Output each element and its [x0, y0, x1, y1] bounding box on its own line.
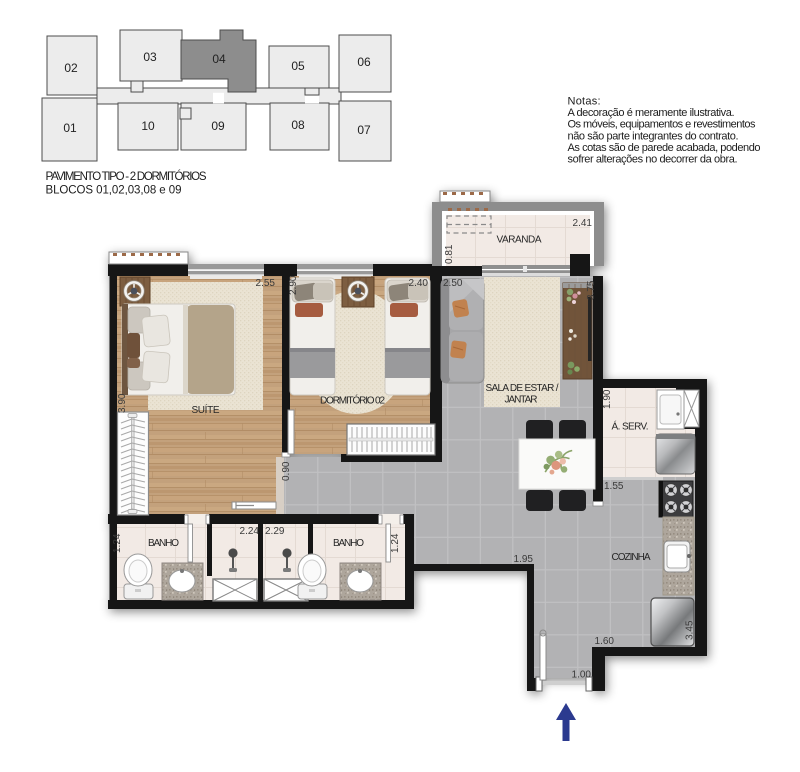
svg-text:JANTAR: JANTAR	[505, 395, 538, 406]
svg-text:08: 08	[291, 118, 305, 132]
svg-text:1.95: 1.95	[514, 554, 534, 565]
svg-text:2.90: 2.90	[288, 275, 299, 295]
svg-text:06: 06	[357, 55, 371, 69]
svg-text:2.40: 2.40	[409, 278, 429, 289]
svg-text:3.45: 3.45	[685, 620, 696, 640]
svg-text:BLOCOS 01,02,03,08 e 09: BLOCOS 01,02,03,08 e 09	[46, 185, 182, 197]
svg-text:DORMITÓRIO 02: DORMITÓRIO 02	[320, 394, 385, 407]
svg-text:BANHO: BANHO	[333, 538, 364, 549]
svg-text:2.55: 2.55	[256, 278, 276, 289]
svg-text:2.29: 2.29	[265, 526, 285, 537]
svg-text:1.24: 1.24	[112, 533, 123, 553]
svg-text:2.24: 2.24	[240, 526, 260, 537]
svg-text:01: 01	[63, 121, 77, 135]
svg-text:03: 03	[143, 50, 157, 64]
svg-text:PAVIMENTO TIPO - 2 DORMITÓRIOS: PAVIMENTO TIPO - 2 DORMITÓRIOS	[46, 170, 207, 183]
svg-text:3.75: 3.75	[586, 280, 597, 300]
svg-text:2.50: 2.50	[443, 278, 463, 289]
svg-text:1.60: 1.60	[595, 636, 615, 647]
svg-text:Á. SERV.: Á. SERV.	[612, 420, 649, 433]
svg-text:1.90: 1.90	[602, 389, 613, 409]
svg-text:SALA DE ESTAR /: SALA DE ESTAR /	[486, 383, 559, 394]
svg-text:1.24: 1.24	[390, 533, 401, 553]
svg-text:não são parte integrantes do c: não são parte integrantes do contrato.	[568, 130, 739, 142]
svg-text:0.81: 0.81	[444, 244, 455, 264]
svg-text:VARANDA: VARANDA	[497, 235, 542, 246]
svg-text:0.90: 0.90	[281, 461, 292, 481]
svg-text:As cotas são de parede acabada: As cotas são de parede acabada, podendo	[568, 142, 761, 154]
svg-text:1.55: 1.55	[604, 481, 624, 492]
svg-text:sofrer alterações no decorrer: sofrer alterações no decorrer da obra.	[568, 154, 738, 166]
svg-text:SUÍTE: SUÍTE	[192, 403, 220, 416]
svg-text:02: 02	[64, 61, 78, 75]
svg-text:2.41: 2.41	[573, 218, 593, 229]
svg-text:BANHO: BANHO	[148, 538, 179, 549]
svg-text:10: 10	[141, 119, 155, 133]
svg-text:05: 05	[291, 59, 305, 73]
svg-text:A decoração é meramente ilustr: A decoração é meramente ilustrativa.	[568, 107, 735, 119]
svg-text:04: 04	[212, 52, 226, 66]
svg-text:07: 07	[357, 123, 371, 137]
svg-text:Notas:: Notas:	[568, 96, 601, 108]
svg-text:COZINHA: COZINHA	[612, 552, 651, 563]
svg-text:3.90: 3.90	[117, 393, 128, 413]
svg-text:Os móveis, equipamentos e reve: Os móveis, equipamentos e revestimentos	[568, 119, 757, 131]
svg-text:1.00: 1.00	[572, 670, 592, 681]
svg-text:09: 09	[211, 119, 225, 133]
